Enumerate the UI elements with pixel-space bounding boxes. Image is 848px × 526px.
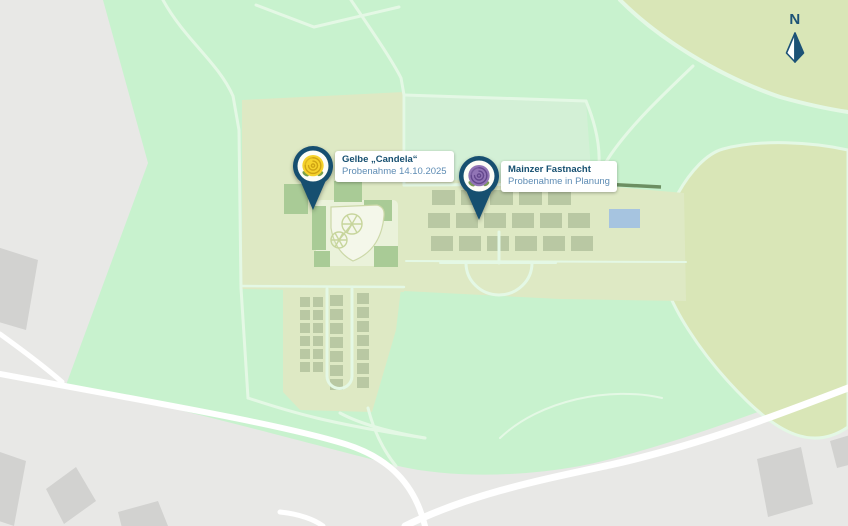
north-arrow: N	[783, 12, 807, 69]
north-arrow-icon	[783, 32, 807, 64]
marker-title: Gelbe „Candela“	[342, 154, 447, 166]
marker-subtitle: Probenahme 14.10.2025	[342, 166, 447, 178]
marker-label: Mainzer Fastnacht Probenahme in Planung	[501, 161, 617, 192]
marker-title: Mainzer Fastnacht	[508, 164, 610, 176]
park-map: Gelbe „Candela“ Probenahme 14.10.2025	[0, 0, 848, 526]
north-label: N	[783, 12, 807, 28]
map-pin-yellow[interactable]	[290, 142, 336, 212]
map-pin-purple[interactable]	[456, 152, 502, 222]
map-canvas	[0, 0, 848, 526]
marker-subtitle: Probenahme in Planung	[508, 176, 610, 188]
water-basin	[609, 209, 640, 228]
marker-label: Gelbe „Candela“ Probenahme 14.10.2025	[335, 151, 454, 182]
